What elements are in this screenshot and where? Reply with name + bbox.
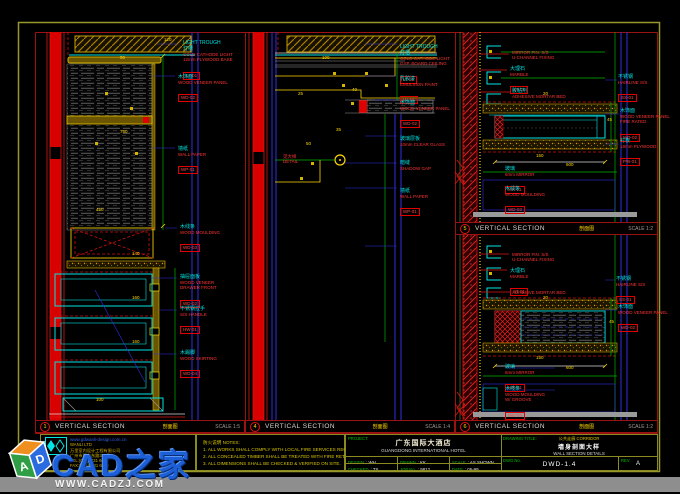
project-name-en: GUANGDONG INTERNATIONAL HOTEL <box>346 448 501 453</box>
dimension-label: 100 <box>322 56 330 61</box>
panel-4-titlebar: 4 VERTICAL SECTION 剖面图 SCALE 1:4 <box>245 420 455 433</box>
note-line: 防火说明 NOTES: <box>203 439 342 446</box>
dimension-value: 50 <box>306 141 311 146</box>
checked-value: : TS <box>370 467 378 471</box>
dimension-label: 450 <box>96 208 104 213</box>
panel-6-titlebar: 6 VERTICAL SECTION 剖面图 SCALE 1:2 <box>455 420 658 433</box>
project-label: PROJECT: <box>348 436 368 441</box>
finish-callout: 木线条 WOOD MOULDING WD-03 <box>505 186 545 217</box>
section-title: VERTICAL SECTION <box>475 423 545 430</box>
callout-spec-text: MIRROR FIN. S/S U-CHANNEL FIXING <box>512 50 554 61</box>
dimension-label: 100 <box>96 398 104 403</box>
section-scale: SCALE 1:4 <box>425 424 450 430</box>
dimension-value: 20 <box>543 295 548 300</box>
date-value: : 05-99 <box>465 467 479 471</box>
dimension-value: 600 <box>566 365 574 370</box>
dimension-value: 150 <box>536 153 544 158</box>
dimension-label: 750 <box>120 130 128 135</box>
callout-spec-text: MIRROR FIN. S/S U-CHANNEL FIXING <box>512 252 554 263</box>
section-scale: SCALE 1:5 <box>215 424 240 430</box>
section-subtitle: 剖面图 <box>579 423 594 430</box>
callout-spec-text: ADHESIVE MORTAR BED <box>512 94 566 99</box>
rev-cell: REV A <box>619 457 657 471</box>
dimension-value: 100 <box>322 55 330 60</box>
finish-code-tag: PW-01 <box>620 158 640 166</box>
title-block: PROJECT: 广东国际大酒店 GUANGDONG INTERNATIONAL… <box>345 434 658 471</box>
cadzj-watermark-text: CAD之家 <box>52 440 191 485</box>
dimension-label: 120 <box>164 38 172 43</box>
drawing-title-en: WALL SECTION DETAILS <box>501 451 657 456</box>
panel-5-titlebar: 5 VERTICAL SECTION 剖面图 SCALE 1:2 <box>455 222 658 235</box>
section-number-badge: 6 <box>460 422 470 432</box>
rev-label: REV <box>621 458 630 463</box>
callout-material-name: LIGHT TROUGH 灯槽 <box>400 44 450 56</box>
project-name-cn: 广东国际大酒店 <box>346 435 501 448</box>
callout-spec-text: WOOD MOULDING W/ GROOVE <box>505 392 545 403</box>
finish-code-tag: WD-02 <box>400 120 420 128</box>
dimension-label: 35 <box>336 128 341 133</box>
callout-spec-text: 见大样 DETAIL <box>283 154 298 165</box>
note-line: 2. ALL CONCEALED TIMBER SHALL BE TREATED… <box>203 453 342 460</box>
finish-callout: 木饰面 WOOD VENEER PANEL WD-02 <box>178 74 228 105</box>
section-subtitle: 剖面图 <box>579 225 594 232</box>
finish-code-tag: WD-03 <box>505 412 525 420</box>
job-no-value: : 9812 <box>418 467 430 471</box>
finish-callout: 见大样 DETAIL <box>283 154 298 165</box>
callout-spec-text: 10mm CLEAR GLASS <box>400 142 445 147</box>
dimension-label: 600 <box>566 163 574 168</box>
note-line: 3. ALL DIMENSIONS SHALL BE CHECKED & VER… <box>203 460 342 467</box>
dimension-value: 140 <box>132 251 140 256</box>
callout-spec-text: WOOD VENEER PANEL <box>400 106 450 111</box>
drawing-title-cell: DRAWING TITLE: 公共走廊 CORRIDOR 墙身剖面大样 WALL… <box>501 435 657 457</box>
cad-drawing-sheet: LIGHT TROUGH 灯槽 COLD CATHODE LIGHT 12mm … <box>0 0 680 494</box>
dimension-label: 45 <box>609 320 614 325</box>
section-number-badge: 5 <box>460 224 470 234</box>
section-subtitle: 剖面图 <box>163 423 178 430</box>
finish-code-tag: WP-01 <box>400 208 420 216</box>
finish-code-tag: WD-03 <box>505 206 525 214</box>
project-cell: PROJECT: 广东国际大酒店 GUANGDONG INTERNATIONAL… <box>346 435 501 457</box>
job-no-label: JOB No. <box>400 467 416 471</box>
finish-callout: 玻璃层板 10mm CLEAR GLASS <box>400 136 445 147</box>
title-block-row-1: DESIGN: WH DRAWN: KK SCALE: AS SHOWN <box>346 457 501 464</box>
checked-label: CHECKED <box>348 467 368 471</box>
callout-spec-text: WOOD SKIRTING <box>180 356 217 361</box>
section-subtitle: 剖面图 <box>373 423 388 430</box>
dimension-value: 160 <box>132 295 140 300</box>
dimension-value: 160 <box>132 339 140 344</box>
dimension-value: 50 <box>120 55 125 60</box>
callout-spec-text: HAIRLINE S/S <box>618 80 647 85</box>
section-title: VERTICAL SECTION <box>475 225 545 232</box>
finish-callout: MIRROR FIN. S/S U-CHANNEL FIXING <box>512 252 554 263</box>
finish-callout: ADHESIVE MORTAR BED <box>512 290 566 295</box>
section-scale: SCALE 1:2 <box>628 424 653 430</box>
finish-callout: 墙纸 WALL PAPER WP-01 <box>178 146 206 177</box>
finish-callout: 胶粘剂 ADHESIVE MORTAR BED <box>512 88 566 99</box>
callout-spec-text: 6mm MIRROR <box>505 172 535 177</box>
finish-code-tag: SS-01 <box>618 94 637 102</box>
section-title: VERTICAL SECTION <box>265 423 335 430</box>
callout-spec-text: COLD CATHODE LIGHT 12mm PLYWOOD BASE <box>183 52 233 63</box>
finish-callout: 不锈钢 HAIRLINE S/S SS-01 <box>616 276 645 307</box>
callout-spec-text: ADHESIVE MORTAR BED <box>512 290 566 295</box>
finish-callout: 木线条 WOOD MOULDING W/ GROOVE WD-03 <box>505 386 545 422</box>
callout-spec-text: WOOD MOULDING <box>505 192 545 197</box>
dimension-value: 40 <box>352 87 357 92</box>
callout-spec-text: MARBLE <box>510 72 529 77</box>
dimension-label: 600 <box>566 366 574 371</box>
callout-spec-text: SHADOW GAP <box>400 166 431 171</box>
title-block-left: PROJECT: 广东国际大酒店 GUANGDONG INTERNATIONAL… <box>346 435 502 470</box>
section-title: VERTICAL SECTION <box>55 423 125 430</box>
dimension-value: 25 <box>298 91 303 96</box>
finish-code-tag: WD-02 <box>618 324 638 332</box>
dimension-value: 45 <box>607 117 612 122</box>
cadzj-cube-logo-icon: A D <box>5 433 57 491</box>
dimension-value: 120 <box>164 37 172 42</box>
callout-spec-text: MARBLE <box>510 274 529 279</box>
dimension-value: 450 <box>96 207 104 212</box>
general-notes-block: 防火说明 NOTES: 1. ALL WORKS SHALL COMPLY WI… <box>196 434 345 471</box>
callout-spec-text: S/S HANDLE <box>180 312 207 317</box>
finish-callout: 木线条 WOOD MOULDING WD-03 <box>180 224 220 255</box>
callout-spec-text: HAIRLINE S/S <box>616 282 645 287</box>
dimension-label: 150 <box>536 356 544 361</box>
dimension-label: 160 <box>132 296 140 301</box>
dimension-value: 35 <box>336 127 341 132</box>
section-scale: SCALE 1:2 <box>628 226 653 232</box>
callout-spec-text: COLD CATHODE LIGHT GYP. BOARD CEILING <box>400 56 450 67</box>
dimension-label: 40 <box>352 88 357 93</box>
section-number-badge: 4 <box>250 422 260 432</box>
callout-material-name: LIGHT TROUGH 灯槽 <box>183 40 233 52</box>
dimension-value: 150 <box>536 355 544 360</box>
dimension-label: 140 <box>132 252 140 257</box>
callout-spec-text: WALL PAPER <box>178 152 206 157</box>
finish-code-tag: WD-04 <box>180 370 200 378</box>
callout-spec-text: EMULSION PAINT <box>400 82 438 87</box>
drawing-title-cn: 墙身剖面大样 <box>501 442 657 451</box>
finish-callout: 墙纸 WALL PAPER WP-01 <box>400 188 428 219</box>
dimension-value: 45 <box>609 319 614 324</box>
dimension-value: 600 <box>566 162 574 167</box>
dimension-value: 750 <box>120 129 128 134</box>
finish-callout: 不锈钢 HAIRLINE S/S SS-01 <box>618 74 647 105</box>
note-line: 1. ALL WORKS SHALL COMPLY WITH LOCAL FIR… <box>203 446 342 453</box>
finish-callout: 暗缝 SHADOW GAP <box>400 160 431 171</box>
dimension-label: 25 <box>298 92 303 97</box>
drawing-title-label: DRAWING TITLE: <box>503 436 537 441</box>
finish-code-tag: WD-02 <box>178 94 198 102</box>
finish-code-tag: HW-01 <box>180 326 200 334</box>
callout-spec-text: WOOD VENEER PANEL FIRE RATED <box>620 114 670 125</box>
finish-callout: MIRROR FIN. S/S U-CHANNEL FIXING <box>512 50 554 61</box>
finish-callout: 衬板 18mm PLYWOOD PW-01 <box>620 138 656 169</box>
finish-callout: 不锈钢拉手 S/S HANDLE HW-01 <box>180 306 207 337</box>
finish-code-tag: WP-01 <box>178 166 198 174</box>
finish-callout: 抽屉面板 WOOD VENEER DRAWER FRONT WD-02 <box>180 274 217 310</box>
callout-spec-text: WOOD VENEER PANEL <box>618 310 668 315</box>
dimension-value: 100 <box>96 397 104 402</box>
title-block-row-2: CHECKED: TS JOB No.: 9812 DATE: 05-99 <box>346 464 501 471</box>
dimension-label: 150 <box>536 154 544 159</box>
callout-spec-text: 18mm PLYWOOD <box>620 144 656 149</box>
dwg-no-label: DWG No. <box>503 458 521 463</box>
dimension-label: 160 <box>132 340 140 345</box>
section-number-badge: 1 <box>40 422 50 432</box>
callout-spec-text: WOOD VENEER DRAWER FRONT <box>180 280 217 291</box>
panel-1-titlebar: 1 VERTICAL SECTION 剖面图 SCALE 1:5 <box>35 420 245 433</box>
dwg-no-cell: DWG No. DWD-1.4 <box>501 457 619 471</box>
callout-spec-text: WALL PAPER <box>400 194 428 199</box>
callout-spec-text: 6mm MIRROR <box>505 370 535 375</box>
callout-spec-text: WOOD MOULDING <box>180 230 220 235</box>
callout-spec-text: WOOD VENEER PANEL <box>178 80 228 85</box>
title-block-right: DRAWING TITLE: 公共走廊 CORRIDOR 墙身剖面大样 WALL… <box>501 435 657 470</box>
drawing-number-row: DWG No. DWD-1.4 REV A <box>501 457 657 471</box>
finish-callout: 木饰面 WOOD VENEER PANEL WD-02 <box>400 100 450 131</box>
finish-code-tag: WD-03 <box>180 244 200 252</box>
date-label: DATE <box>452 467 463 471</box>
dimension-label: 50 <box>120 56 125 61</box>
dimension-label: 50 <box>306 142 311 147</box>
finish-callout: 木踢脚 WOOD SKIRTING WD-04 <box>180 350 217 381</box>
dimension-label: 45 <box>607 118 612 123</box>
finish-callout: 木饰面 WOOD VENEER PANEL WD-02 <box>618 304 668 335</box>
dimension-label: 20 <box>543 296 548 301</box>
